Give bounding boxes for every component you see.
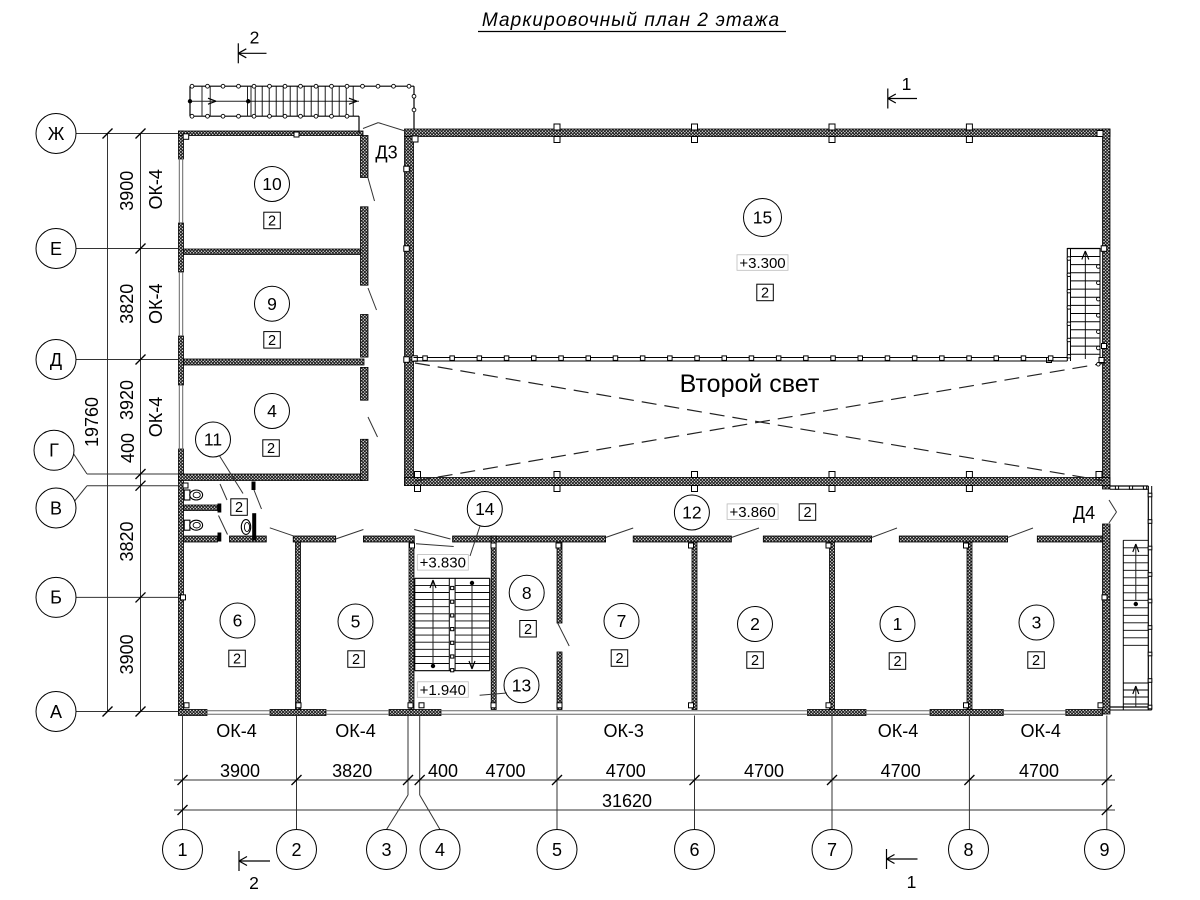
svg-text:ОК-4: ОК-4 [146,397,166,438]
svg-text:5: 5 [351,612,361,632]
svg-text:Д: Д [50,350,62,370]
svg-text:Маркировочный план 2 этажа: Маркировочный план 2 этажа [482,10,780,31]
svg-text:2: 2 [267,441,275,457]
svg-text:2: 2 [524,622,532,638]
svg-text:4700: 4700 [606,761,646,781]
svg-text:+1.940: +1.940 [420,682,466,699]
svg-text:2: 2 [761,286,769,302]
svg-text:2: 2 [750,614,760,634]
svg-text:2: 2 [233,652,241,668]
svg-text:4: 4 [435,840,445,860]
svg-text:2: 2 [893,654,901,670]
svg-text:Е: Е [50,239,62,259]
svg-text:8: 8 [522,583,532,603]
svg-text:400: 400 [118,433,138,463]
svg-text:31620: 31620 [602,791,652,811]
svg-text:2: 2 [615,651,623,667]
svg-text:А: А [50,702,62,722]
svg-text:ОК-4: ОК-4 [878,721,919,741]
svg-text:2: 2 [250,28,260,48]
svg-text:В: В [50,498,62,518]
svg-text:8: 8 [963,840,973,860]
svg-text:400: 400 [428,761,458,781]
svg-text:3: 3 [1032,613,1042,633]
svg-text:9: 9 [267,294,277,314]
svg-text:2: 2 [1032,653,1040,669]
svg-text:Второй свет: Второй свет [680,370,820,398]
svg-text:ОК-4: ОК-4 [216,721,257,741]
svg-text:3900: 3900 [117,171,137,211]
svg-text:6: 6 [689,840,699,860]
svg-text:5: 5 [552,840,562,860]
svg-text:9: 9 [1099,840,1109,860]
svg-text:3900: 3900 [220,761,260,781]
svg-text:3920: 3920 [117,380,137,420]
svg-text:10: 10 [262,174,282,194]
svg-text:2: 2 [268,333,276,349]
svg-text:4700: 4700 [1019,761,1059,781]
svg-text:Б: Б [50,588,62,608]
svg-text:1: 1 [177,840,187,860]
svg-text:2: 2 [249,873,259,893]
svg-text:12: 12 [682,503,701,523]
svg-text:1: 1 [902,74,912,94]
svg-text:4: 4 [267,401,277,421]
svg-text:19760: 19760 [82,397,102,447]
svg-text:4700: 4700 [744,761,784,781]
svg-text:14: 14 [475,499,495,519]
svg-text:ОК-4: ОК-4 [335,721,376,741]
svg-text:2: 2 [751,653,759,669]
svg-text:ОК-4: ОК-4 [146,169,166,210]
svg-text:ОК-4: ОК-4 [1020,721,1061,741]
svg-text:3820: 3820 [332,761,372,781]
svg-text:2: 2 [352,652,360,668]
svg-text:3820: 3820 [117,521,137,561]
svg-text:4700: 4700 [485,761,525,781]
svg-text:2: 2 [235,500,243,516]
svg-text:+3.300: +3.300 [739,255,785,272]
svg-text:7: 7 [617,611,627,631]
svg-text:ОК-4: ОК-4 [146,283,166,324]
svg-text:+3.860: +3.860 [729,504,775,521]
svg-text:ОК-3: ОК-3 [603,721,644,741]
svg-text:13: 13 [512,675,531,695]
svg-text:+3.830: +3.830 [420,555,466,572]
svg-text:2: 2 [291,840,301,860]
svg-text:1: 1 [907,872,917,892]
svg-text:Д3: Д3 [375,143,397,163]
svg-text:3820: 3820 [117,284,137,324]
svg-text:1: 1 [893,614,903,634]
svg-text:Д4: Д4 [1073,503,1095,523]
svg-text:2: 2 [803,505,811,521]
svg-text:7: 7 [827,840,837,860]
svg-text:6: 6 [233,611,243,631]
svg-text:Г: Г [49,441,59,461]
svg-text:4700: 4700 [881,761,921,781]
svg-text:11: 11 [204,430,222,450]
svg-text:Ж: Ж [48,124,65,144]
svg-text:2: 2 [268,214,276,230]
svg-text:3900: 3900 [117,634,137,674]
svg-text:15: 15 [753,208,772,228]
svg-text:3: 3 [381,840,391,860]
